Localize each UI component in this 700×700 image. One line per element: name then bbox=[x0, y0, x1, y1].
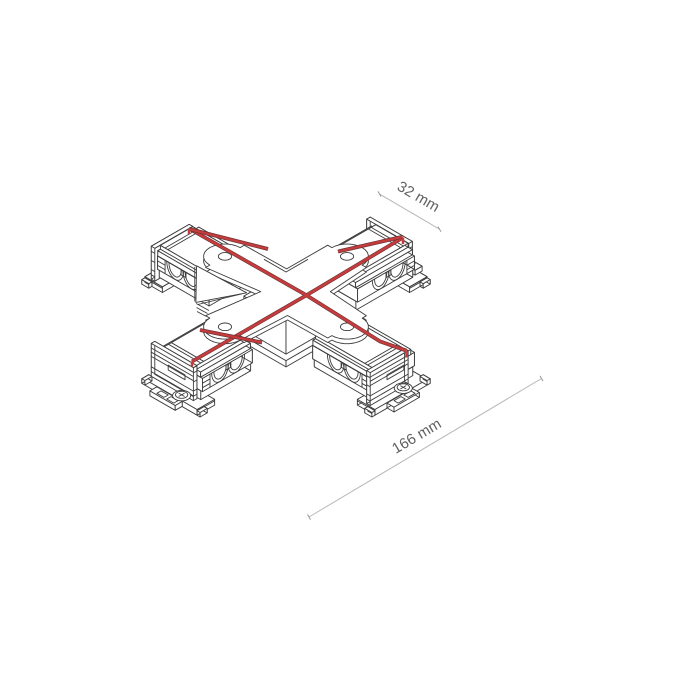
svg-text:32 mm: 32 mm bbox=[394, 178, 442, 216]
svg-text:166 mm: 166 mm bbox=[389, 415, 444, 457]
